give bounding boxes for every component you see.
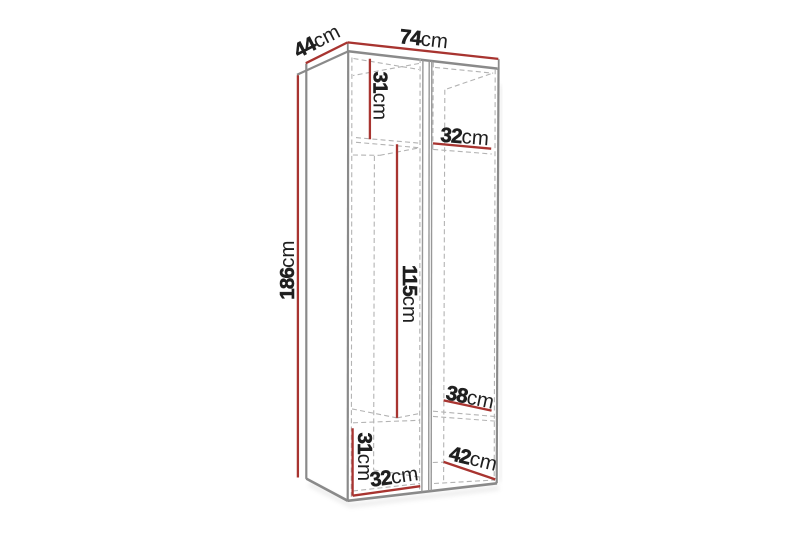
svg-text:31cm: 31cm: [369, 72, 392, 121]
svg-text:32cm: 32cm: [440, 124, 490, 151]
svg-text:42cm: 42cm: [447, 442, 500, 476]
svg-text:38cm: 38cm: [444, 381, 496, 413]
svg-text:186cm: 186cm: [276, 241, 299, 300]
svg-text:115cm: 115cm: [398, 265, 421, 323]
